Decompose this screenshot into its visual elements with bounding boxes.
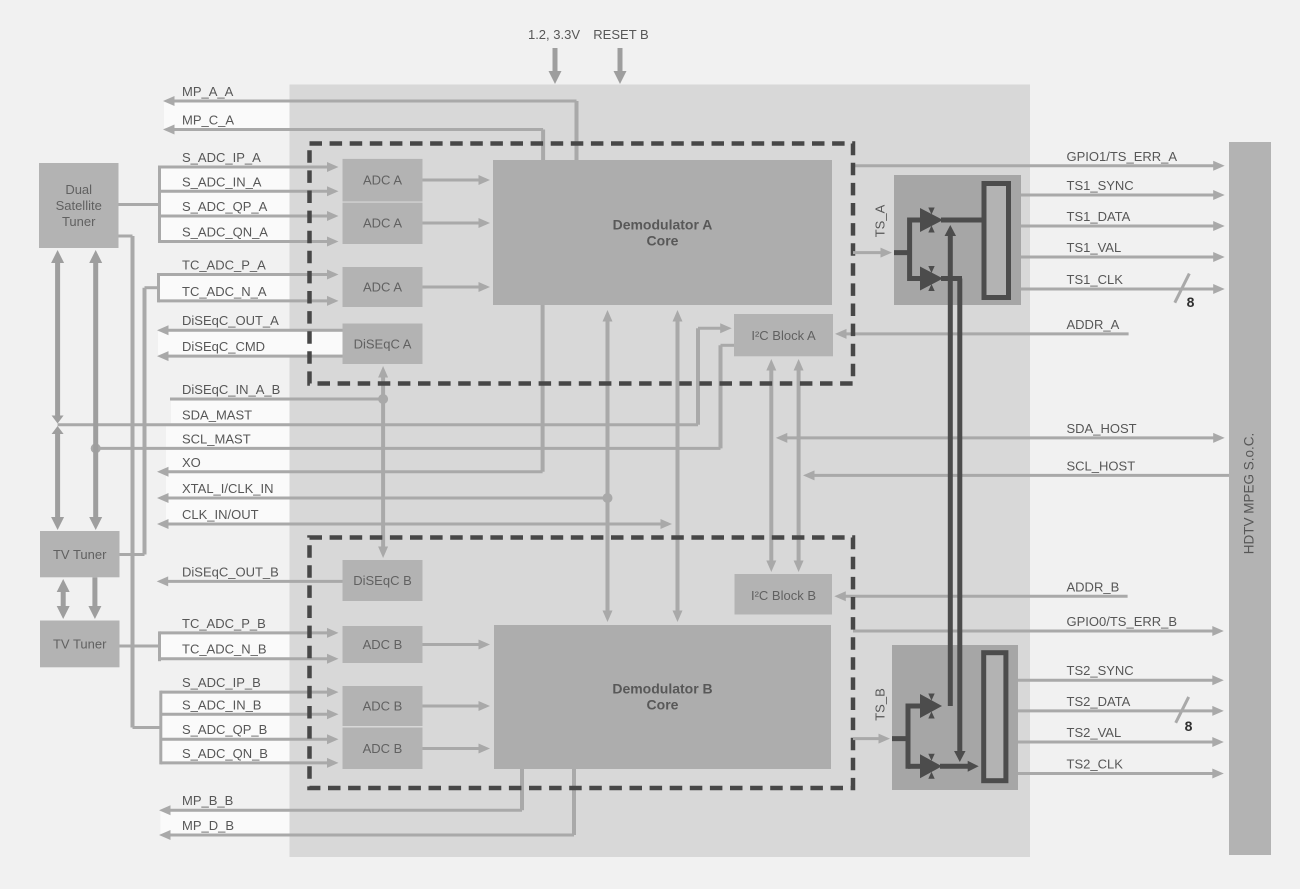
svg-text:I²C Block B: I²C Block B — [751, 588, 816, 603]
svg-text:SDA_HOST: SDA_HOST — [1067, 421, 1137, 436]
svg-text:GPIO1/TS_ERR_A: GPIO1/TS_ERR_A — [1067, 149, 1178, 164]
svg-text:TS_A: TS_A — [873, 204, 888, 237]
svg-text:TC_ADC_P_A: TC_ADC_P_A — [182, 258, 266, 273]
svg-text:SCL_HOST: SCL_HOST — [1067, 458, 1136, 473]
svg-text:ADC A: ADC A — [363, 280, 402, 295]
svg-text:S_ADC_QP_B: S_ADC_QP_B — [182, 722, 267, 737]
svg-text:ADC B: ADC B — [363, 637, 403, 652]
svg-text:DiSEqC_IN_A_B: DiSEqC_IN_A_B — [182, 382, 280, 397]
svg-text:TS1_SYNC: TS1_SYNC — [1067, 178, 1134, 193]
svg-text:S_ADC_QP_A: S_ADC_QP_A — [182, 199, 268, 214]
svg-text:TC_ADC_N_A: TC_ADC_N_A — [182, 284, 267, 299]
svg-text:TS1_VAL: TS1_VAL — [1067, 240, 1122, 255]
svg-text:MP_D_B: MP_D_B — [182, 818, 234, 833]
svg-text:TV Tuner: TV Tuner — [53, 547, 107, 562]
svg-text:Tuner: Tuner — [62, 214, 96, 229]
svg-text:S_ADC_QN_B: S_ADC_QN_B — [182, 746, 268, 761]
svg-text:CLK_IN/OUT: CLK_IN/OUT — [182, 507, 259, 522]
svg-text:SDA_MAST: SDA_MAST — [182, 408, 252, 423]
svg-text:S_ADC_IP_B: S_ADC_IP_B — [182, 675, 261, 690]
svg-text:DiSEqC A: DiSEqC A — [354, 336, 412, 351]
svg-text:DiSEqC B: DiSEqC B — [353, 573, 412, 588]
svg-text:8: 8 — [1185, 718, 1193, 734]
svg-text:Core: Core — [647, 697, 679, 713]
svg-text:I²C Block A: I²C Block A — [751, 328, 816, 343]
svg-text:Demodulator A: Demodulator A — [613, 217, 713, 233]
svg-text:GPIO0/TS_ERR_B: GPIO0/TS_ERR_B — [1067, 614, 1178, 629]
svg-text:ADC A: ADC A — [363, 216, 402, 231]
svg-text:ADDR_B: ADDR_B — [1067, 579, 1120, 594]
svg-text:1.2, 3.3V: 1.2, 3.3V — [528, 27, 580, 42]
svg-text:TV Tuner: TV Tuner — [53, 637, 107, 652]
svg-text:ADC B: ADC B — [363, 741, 403, 756]
svg-text:S_ADC_IN_A: S_ADC_IN_A — [182, 174, 262, 189]
svg-text:XTAL_I/CLK_IN: XTAL_I/CLK_IN — [182, 481, 274, 496]
svg-text:TS_B: TS_B — [873, 688, 888, 721]
svg-text:MP_A_A: MP_A_A — [182, 84, 234, 99]
svg-text:TC_ADC_N_B: TC_ADC_N_B — [182, 642, 267, 657]
svg-text:ADDR_A: ADDR_A — [1067, 317, 1120, 332]
svg-text:S_ADC_QN_A: S_ADC_QN_A — [182, 225, 268, 240]
svg-text:TS1_CLK: TS1_CLK — [1067, 272, 1124, 287]
svg-text:SCL_MAST: SCL_MAST — [182, 431, 251, 446]
svg-text:TS2_VAL: TS2_VAL — [1067, 725, 1122, 740]
svg-text:Demodulator B: Demodulator B — [612, 681, 712, 697]
svg-text:TC_ADC_P_B: TC_ADC_P_B — [182, 616, 266, 631]
svg-text:Satellite: Satellite — [56, 198, 102, 213]
svg-text:ADC B: ADC B — [363, 699, 403, 714]
svg-text:Dual: Dual — [65, 182, 92, 197]
svg-text:TS2_SYNC: TS2_SYNC — [1067, 663, 1134, 678]
svg-text:MP_C_A: MP_C_A — [182, 113, 234, 128]
svg-text:S_ADC_IP_A: S_ADC_IP_A — [182, 150, 261, 165]
svg-text:DiSEqC_OUT_A: DiSEqC_OUT_A — [182, 313, 279, 328]
svg-text:RESET B: RESET B — [593, 27, 648, 42]
svg-text:TS1_DATA: TS1_DATA — [1067, 209, 1131, 224]
svg-text:ADC A: ADC A — [363, 173, 402, 188]
svg-text:Core: Core — [647, 233, 679, 249]
svg-text:8: 8 — [1187, 294, 1195, 310]
svg-text:DiSEqC_CMD: DiSEqC_CMD — [182, 339, 265, 354]
svg-text:DiSEqC_OUT_B: DiSEqC_OUT_B — [182, 564, 279, 579]
svg-text:HDTV MPEG S.o.C.: HDTV MPEG S.o.C. — [1242, 433, 1257, 555]
svg-text:S_ADC_IN_B: S_ADC_IN_B — [182, 697, 261, 712]
svg-text:TS2_CLK: TS2_CLK — [1067, 757, 1124, 772]
svg-text:TS2_DATA: TS2_DATA — [1067, 694, 1131, 709]
svg-text:XO: XO — [182, 455, 201, 470]
svg-text:MP_B_B: MP_B_B — [182, 793, 233, 808]
